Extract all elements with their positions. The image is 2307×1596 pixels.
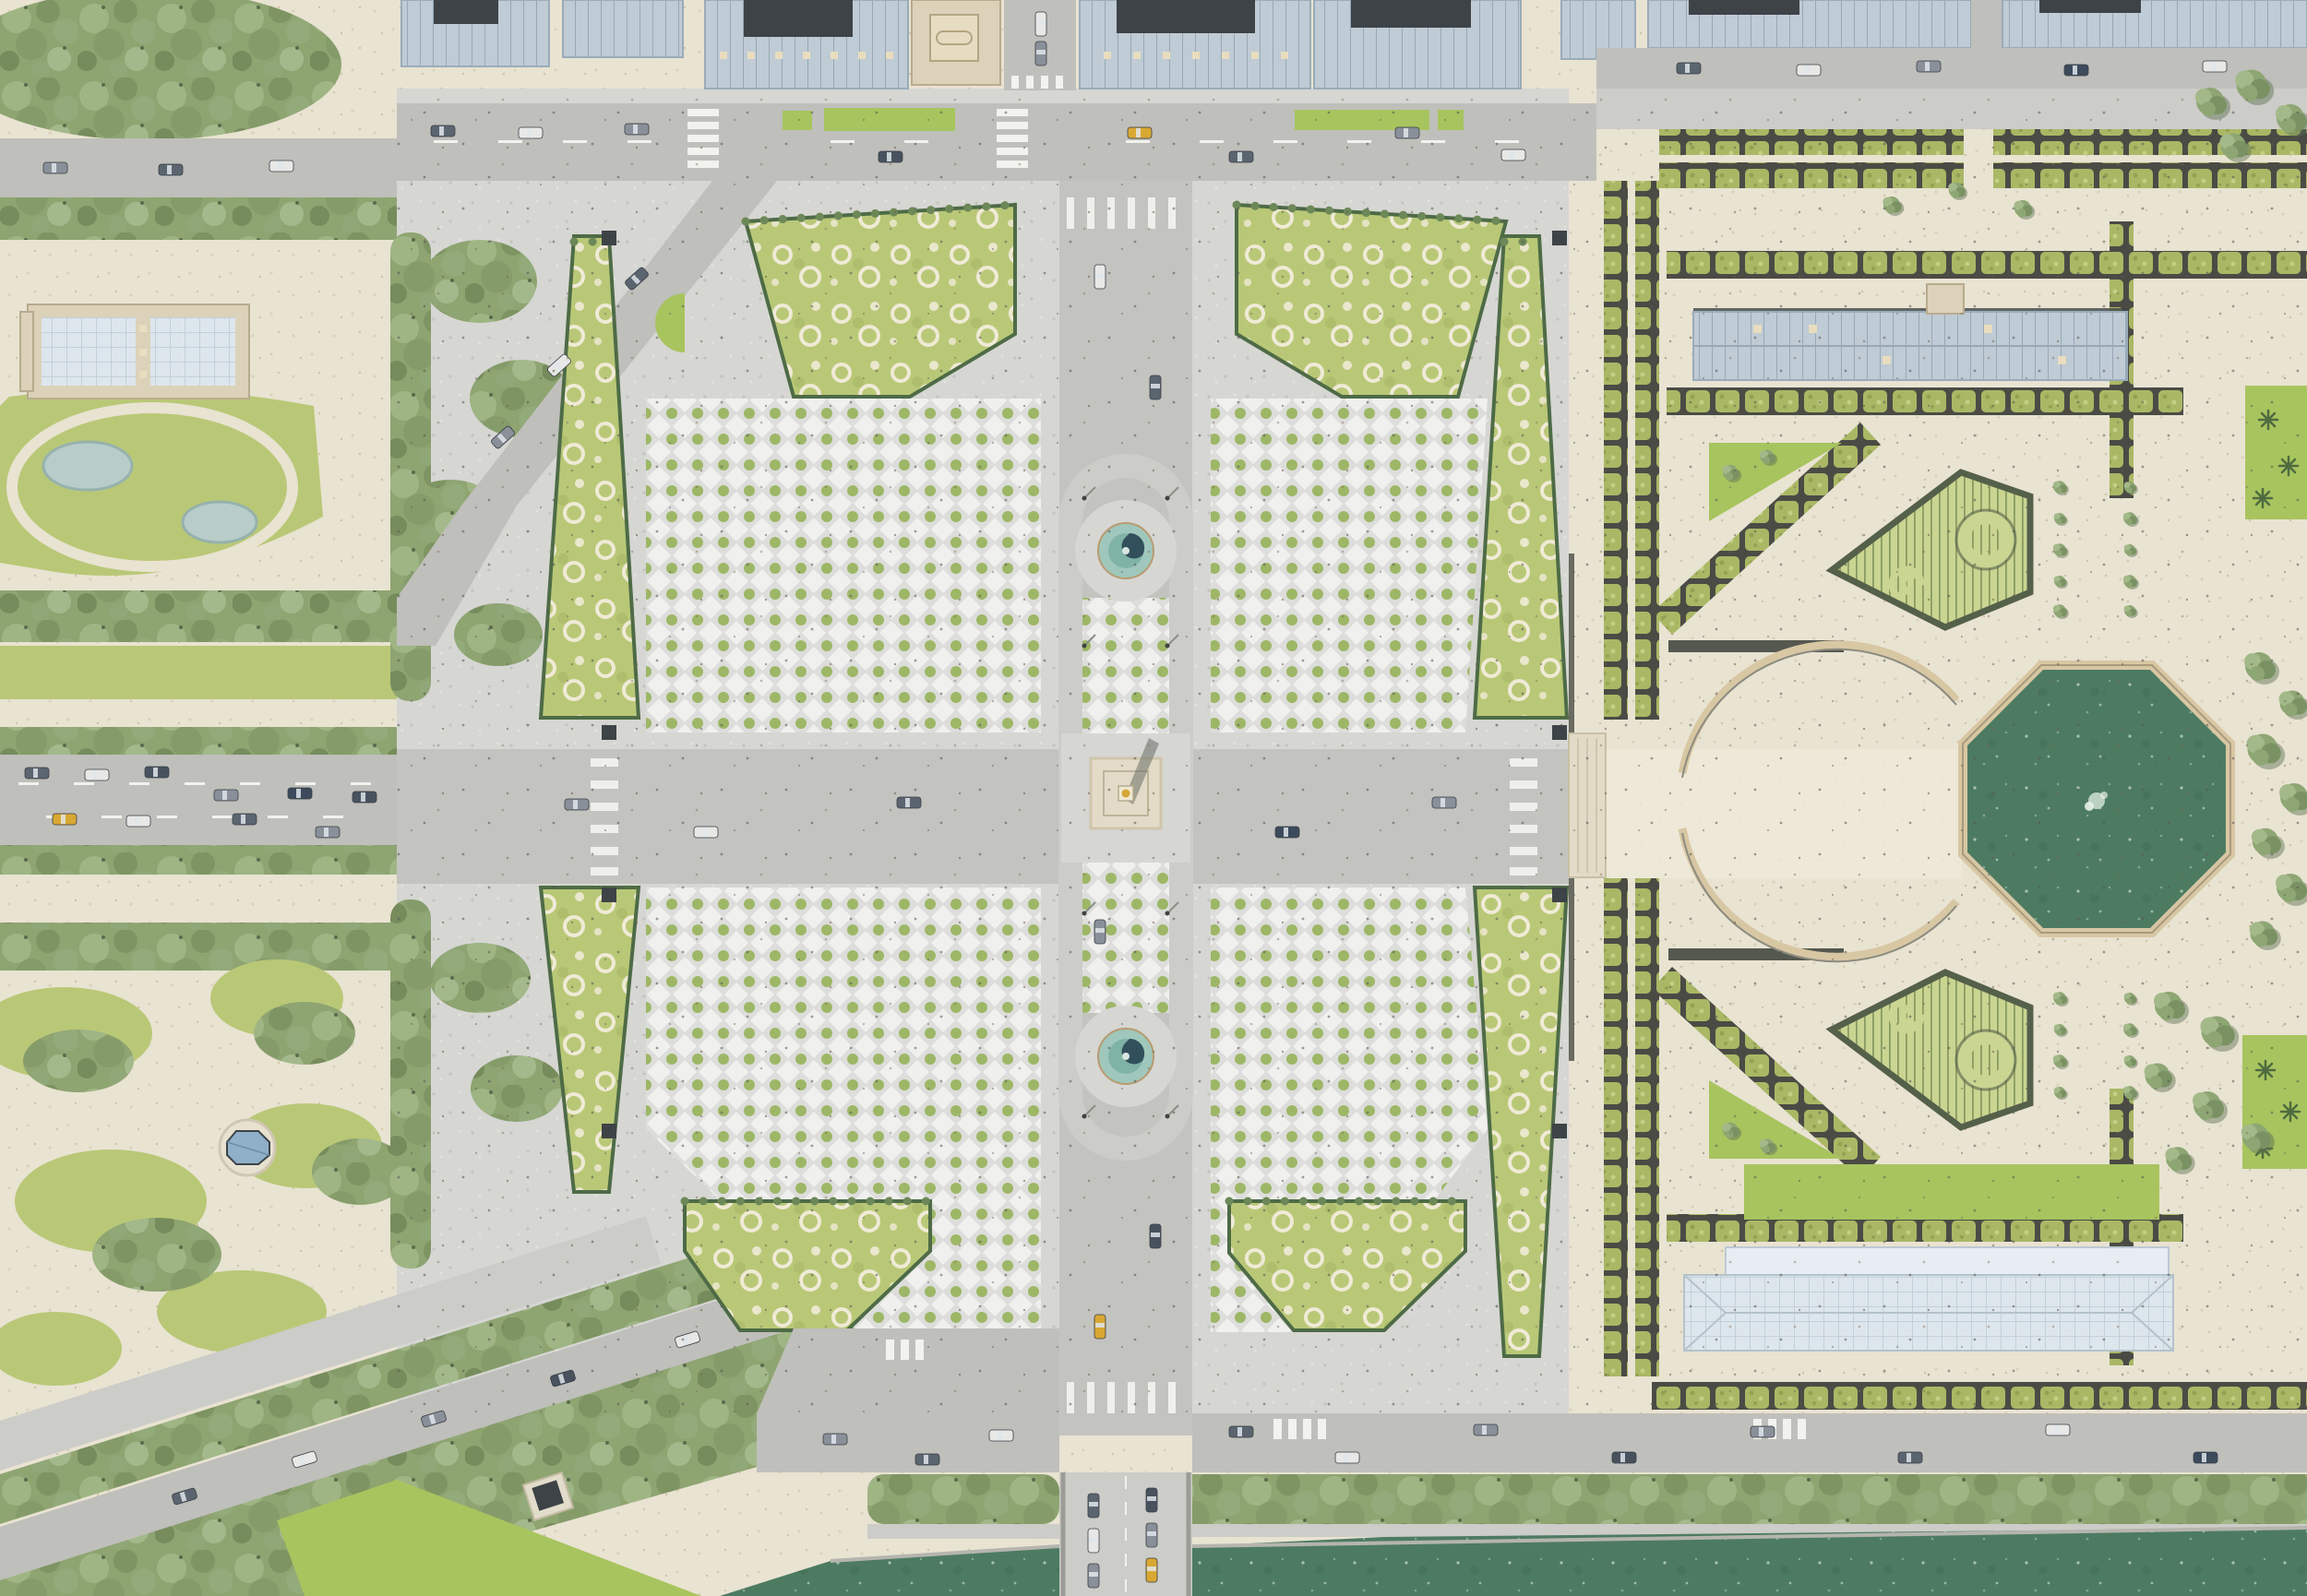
garden-building: Garden pavilion building with glazed roo… [20,304,249,399]
site-plan-svg: Place de la Concorde and Tuileries Garde… [0,0,2307,1596]
beige-courtyard-building: Courtyard building between the twin pala… [912,0,1000,85]
rivoli-road [1596,48,2307,89]
garden-kiosk: Octagonal garden kiosk with blue roof [220,1120,275,1175]
people-specks [397,89,2307,1426]
avenue-champs-elysees: Avenue des Champs-Élysées with traffic l… [0,727,399,875]
hotel-de-la-marine [1080,0,1310,89]
hotel-de-crillon [705,0,908,89]
pont-de-la-concorde: Pont de la Concorde with queued cars [1059,1472,1192,1596]
aerial-map-canvas: Place de la Concorde and Tuileries Garde… [0,0,2307,1596]
